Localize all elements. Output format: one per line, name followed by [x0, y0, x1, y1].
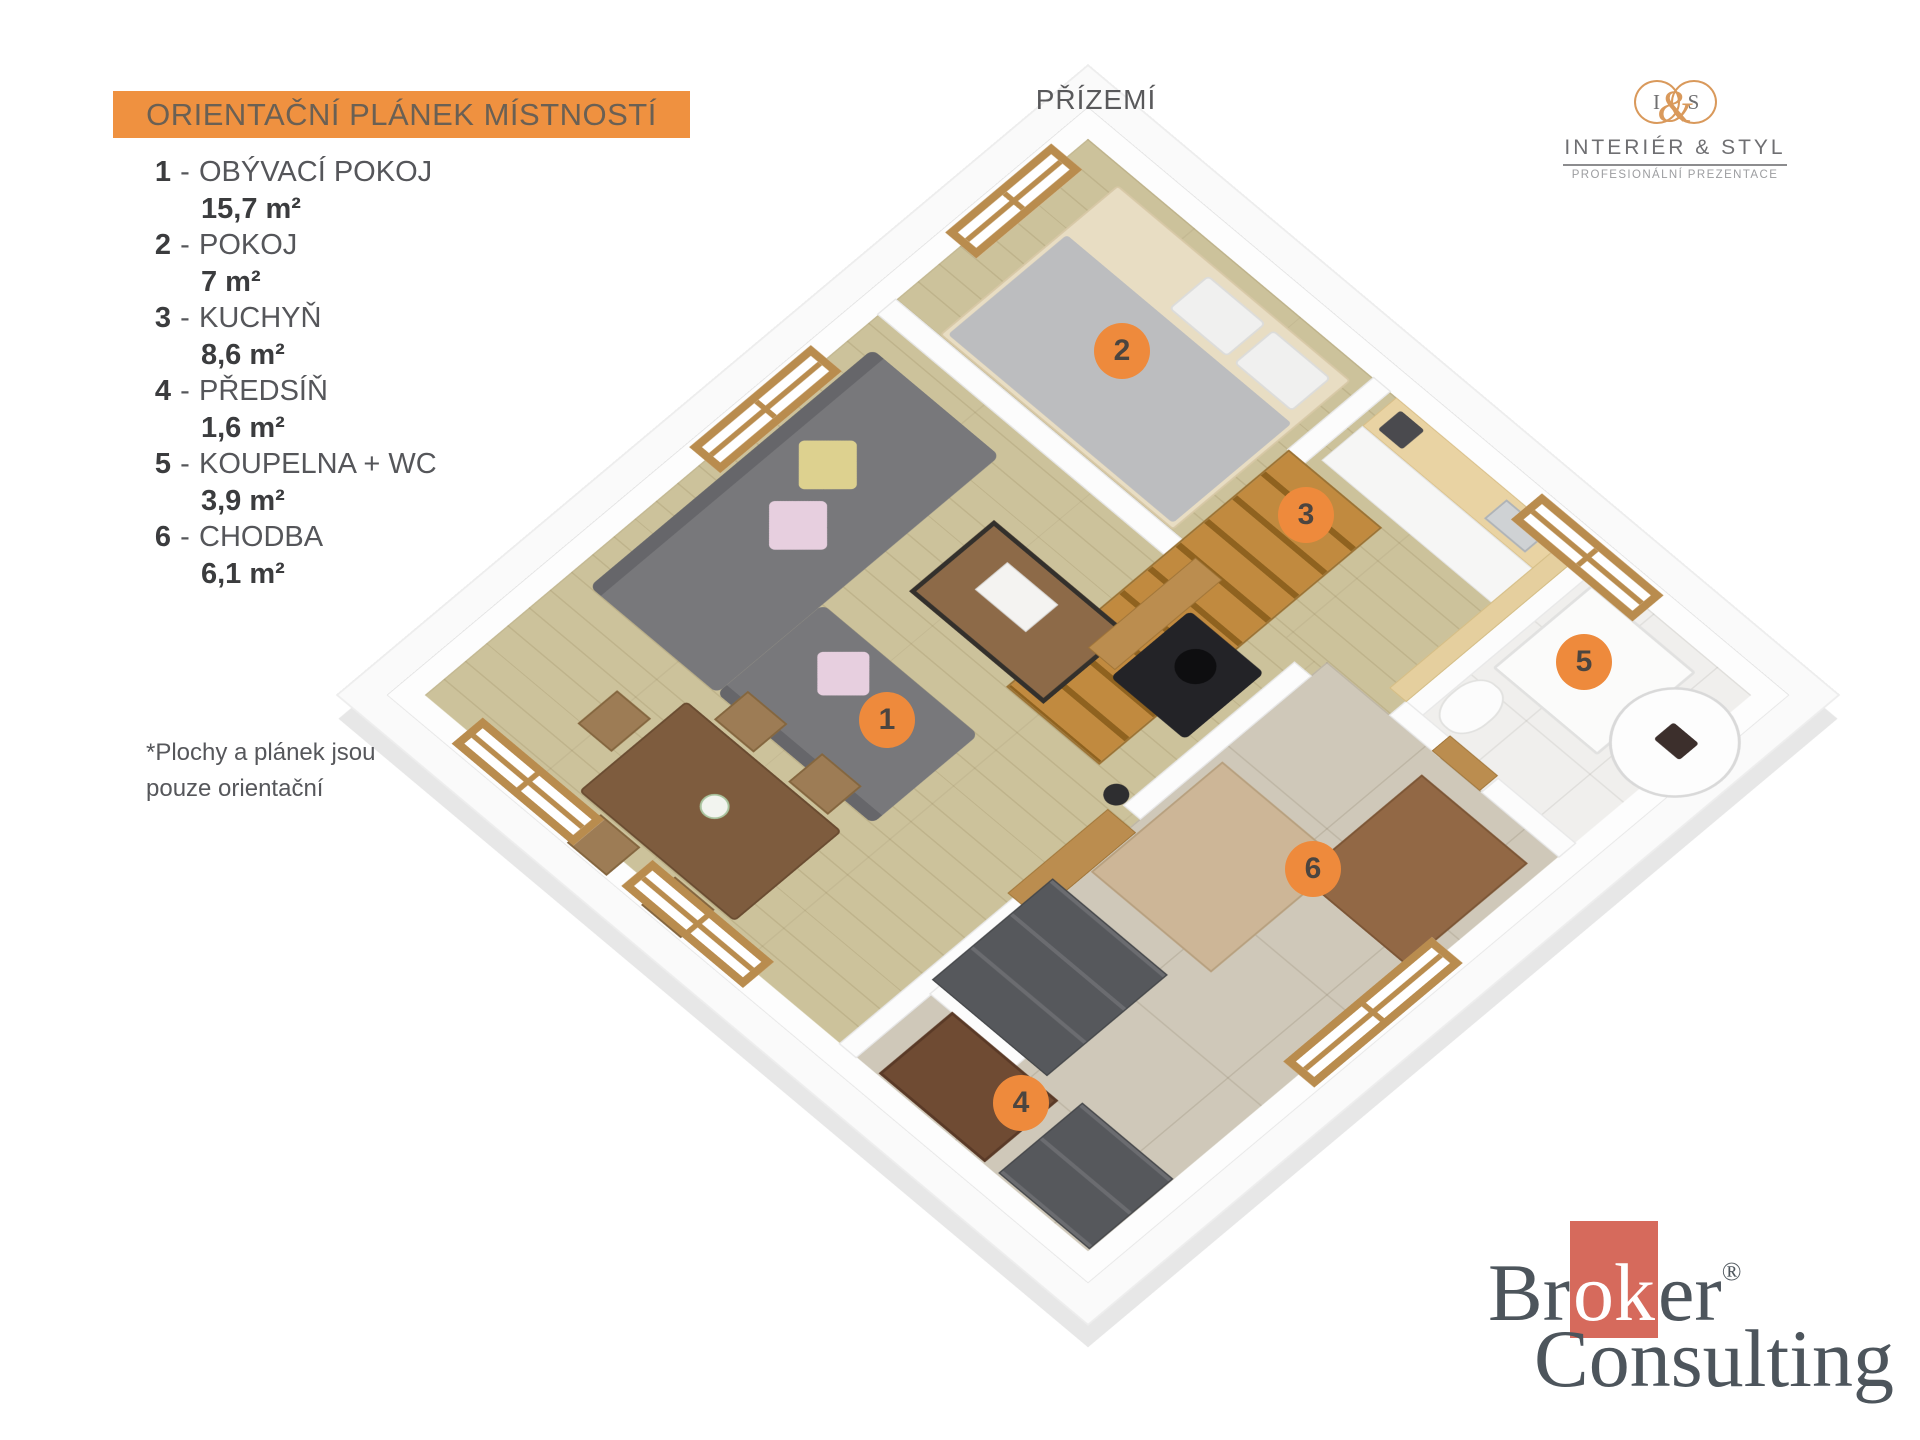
legend-item-4-row: 4 - PŘEDSÍŇ [113, 373, 673, 410]
legend-item-dash: - [171, 156, 199, 189]
disclaimer-line-1: *Plochy a plánek jsou [146, 735, 375, 771]
legend-item-area: 15,7 m² [113, 191, 673, 227]
legend-item-number: 5 [143, 448, 171, 481]
disclaimer-line-2: pouze orientační [146, 771, 375, 807]
legend-item-area: 7 m² [113, 264, 673, 300]
legend-item-area: 6,1 m² [113, 556, 673, 592]
monogram-ampersand: & [1657, 79, 1693, 132]
legend-item-4: 4 - PŘEDSÍŇ 1,6 m² [113, 373, 673, 446]
legend-item-number: 3 [143, 302, 171, 335]
legend-item-area: 8,6 m² [113, 337, 673, 373]
disclaimer-note: *Plochy a plánek jsou pouze orientační [146, 735, 375, 807]
legend-item-name: CHODBA [199, 521, 323, 554]
legend-item-name: POKOJ [199, 229, 297, 262]
interier-styl-monogram: IS & [1563, 80, 1787, 134]
legend-item-1: 1 - OBÝVACÍ POKOJ 15,7 m² [113, 154, 673, 227]
legend-item-dash: - [171, 375, 199, 408]
logo-divider [1563, 164, 1787, 166]
legend-item-1-row: 1 - OBÝVACÍ POKOJ [113, 154, 673, 191]
legend-item-area: 1,6 m² [113, 410, 673, 446]
registered-trademark-icon: ® [1722, 1257, 1742, 1286]
legend-item-3-row: 3 - KUCHYŇ [113, 300, 673, 337]
pillow-pink [769, 501, 827, 550]
broker-consulting-logo: Broker® Consulting [1488, 1252, 1918, 1400]
legend-item-name: OBÝVACÍ POKOJ [199, 156, 432, 189]
pillow-yellow [799, 441, 857, 490]
legend-item-dash: - [171, 302, 199, 335]
legend-item-area: 3,9 m² [113, 483, 673, 519]
legend-item-dash: - [171, 521, 199, 554]
broker-logo-line2: Consulting [1534, 1318, 1918, 1400]
legend-item-name: KUCHYŇ [199, 302, 321, 335]
legend-item-2: 2 - POKOJ 7 m² [113, 227, 673, 300]
interier-styl-tagline: PROFESIONÁLNÍ PREZENTACE [1563, 169, 1787, 181]
legend-list: 1 - OBÝVACÍ POKOJ 15,7 m² 2 - POKOJ 7 m²… [113, 154, 673, 592]
legend-item-name: PŘEDSÍŇ [199, 375, 328, 408]
legend-item-5-row: 5 - KOUPELNA + WC [113, 446, 673, 483]
legend-item-number: 4 [143, 375, 171, 408]
legend-item-6: 6 - CHODBA 6,1 m² [113, 519, 673, 592]
legend-item-number: 2 [143, 229, 171, 262]
legend-item-number: 6 [143, 521, 171, 554]
legend-title: ORIENTAČNÍ PLÁNEK MÍSTNOSTÍ [146, 97, 657, 133]
interier-styl-logo: IS & INTERIÉR & STYL PROFESIONÁLNÍ PREZE… [1563, 80, 1787, 181]
floor-title: PŘÍZEMÍ [996, 84, 1196, 116]
legend-item-dash: - [171, 229, 199, 262]
legend-title-bar: ORIENTAČNÍ PLÁNEK MÍSTNOSTÍ [113, 91, 690, 138]
legend-item-2-row: 2 - POKOJ [113, 227, 673, 264]
legend-item-5: 5 - KOUPELNA + WC 3,9 m² [113, 446, 673, 519]
pillow-pink-chaise [817, 652, 869, 696]
legend-item-dash: - [171, 448, 199, 481]
legend-item-number: 1 [143, 156, 171, 189]
legend-item-name: KOUPELNA + WC [199, 448, 437, 481]
interier-styl-name: INTERIÉR & STYL [1563, 136, 1787, 160]
legend-item-6-row: 6 - CHODBA [113, 519, 673, 556]
legend-item-3: 3 - KUCHYŇ 8,6 m² [113, 300, 673, 373]
